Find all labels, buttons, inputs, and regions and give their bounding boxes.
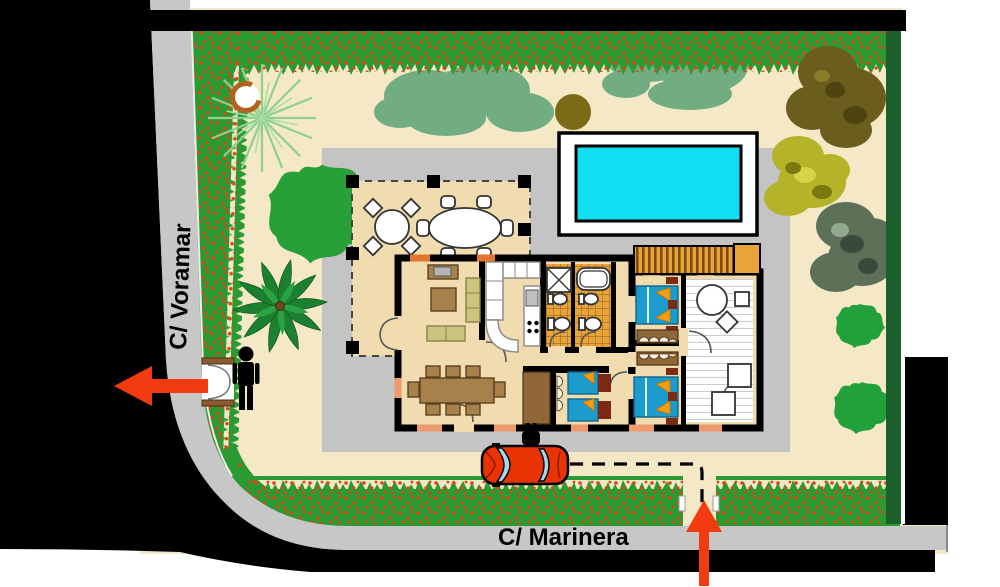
bidet-1 <box>553 294 567 305</box>
bedroom-1 <box>636 277 678 343</box>
boundary-wall-top <box>18 10 906 31</box>
pool-water <box>576 146 741 221</box>
dining-table <box>420 378 494 403</box>
gate-post-right <box>713 496 719 511</box>
studio-table <box>697 285 727 315</box>
street-label-voramar: C/ Voramar <box>165 223 196 350</box>
tv <box>434 267 451 276</box>
boundary-hedge-right <box>886 28 901 524</box>
swimming-pool <box>559 133 757 235</box>
site-plan-page: C/ Voramar C/ Marinera <box>0 0 1000 587</box>
outside-right-black <box>903 357 948 525</box>
red-car <box>482 443 568 487</box>
hedge-bottom <box>246 472 900 529</box>
bedroom-2 <box>634 352 678 425</box>
toilet-2 <box>585 318 601 331</box>
wardrobe-3 <box>523 372 550 424</box>
olive-tree-top <box>555 94 591 130</box>
gate-post-left <box>679 496 685 511</box>
kitchen-cabinets-left <box>486 262 503 320</box>
coffee-table <box>431 288 456 311</box>
site-plan: C/ Voramar C/ Marinera <box>0 0 1000 587</box>
kitchen-sink <box>526 290 538 306</box>
pergola <box>634 244 760 274</box>
toilet-1 <box>554 318 570 331</box>
chaise-modules <box>466 278 480 322</box>
bathroom-1 <box>547 268 571 331</box>
spiky-plant <box>208 64 316 172</box>
street-label-marinera: C/ Marinera <box>498 524 629 551</box>
boundary-gap-line <box>901 28 905 524</box>
hedge-top <box>158 28 906 75</box>
house <box>380 244 760 432</box>
outside-far-right <box>948 0 1000 587</box>
bidet-2 <box>584 294 598 305</box>
kitchen-cabinets-top <box>503 262 540 278</box>
